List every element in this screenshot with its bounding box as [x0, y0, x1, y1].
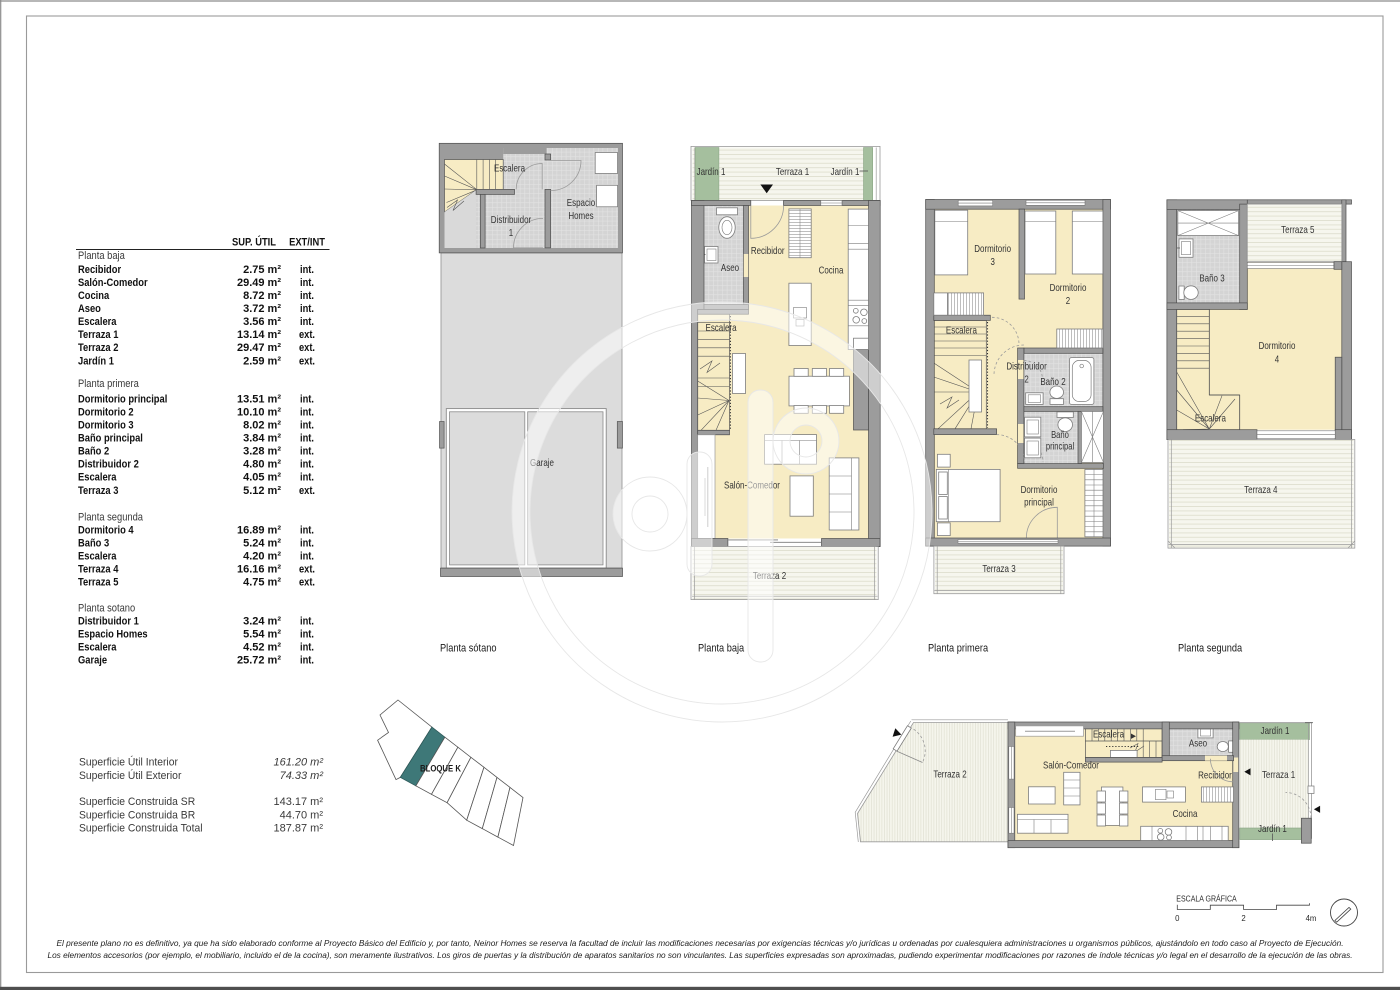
svg-text:Baño 2: Baño 2 — [1040, 376, 1065, 388]
svg-text:161.20 m²: 161.20 m² — [273, 757, 323, 769]
svg-text:44.70 m²: 44.70 m² — [280, 809, 324, 821]
svg-text:Jardín 1: Jardín 1 — [697, 166, 726, 178]
svg-text:25.72 m²: 25.72 m² — [237, 655, 281, 667]
svg-text:Superficie Útil Interior: Superficie Útil Interior — [79, 756, 178, 769]
svg-text:Terraza 3: Terraza 3 — [982, 563, 1015, 575]
svg-text:Distribuidor: Distribuidor — [491, 214, 532, 226]
svg-text:Terraza 5: Terraza 5 — [78, 577, 118, 589]
svg-text:5.24 m²: 5.24 m² — [243, 537, 281, 549]
svg-text:Dormitorio 4: Dormitorio 4 — [78, 524, 134, 536]
svg-text:10.10 m²: 10.10 m² — [237, 406, 281, 418]
svg-text:El presente plano no es defini: El presente plano no es definitivo, ya q… — [57, 939, 1344, 948]
svg-text:Terraza 4: Terraza 4 — [1244, 484, 1277, 496]
svg-text:SUP. ÚTIL: SUP. ÚTIL — [232, 236, 276, 249]
svg-text:int.: int. — [300, 615, 314, 627]
svg-text:Cocina: Cocina — [1173, 808, 1198, 820]
svg-text:Dormitorio 3: Dormitorio 3 — [78, 420, 134, 432]
svg-text:Jardín 1: Jardín 1 — [1258, 823, 1287, 835]
svg-text:1: 1 — [509, 227, 514, 239]
svg-text:2: 2 — [1024, 373, 1029, 385]
svg-text:Dormitorio 2: Dormitorio 2 — [78, 406, 134, 418]
svg-text:Salón-Comedor: Salón-Comedor — [78, 277, 148, 289]
svg-text:ext.: ext. — [299, 329, 315, 341]
svg-text:Escalera: Escalera — [78, 472, 117, 484]
svg-text:Recibidor: Recibidor — [751, 245, 785, 257]
svg-text:Dormitorio: Dormitorio — [1050, 282, 1087, 294]
svg-text:Terraza 1: Terraza 1 — [776, 166, 809, 178]
svg-text:Aseo: Aseo — [1189, 738, 1207, 750]
svg-text:Terraza 4: Terraza 4 — [78, 564, 119, 576]
svg-text:Distribuidor 2: Distribuidor 2 — [78, 459, 139, 471]
svg-text:int.: int. — [300, 316, 314, 328]
svg-text:3: 3 — [991, 256, 996, 268]
svg-text:Planta sótano: Planta sótano — [440, 643, 497, 655]
svg-text:Terraza 3: Terraza 3 — [78, 485, 118, 497]
svg-text:4.52 m²: 4.52 m² — [243, 642, 281, 654]
svg-text:Planta baja: Planta baja — [698, 643, 745, 655]
svg-text:5.54 m²: 5.54 m² — [243, 628, 281, 640]
svg-text:int.: int. — [300, 537, 314, 549]
svg-text:16.89 m²: 16.89 m² — [237, 524, 281, 536]
svg-text:EXT/INT: EXT/INT — [289, 237, 325, 249]
svg-text:int.: int. — [300, 406, 314, 418]
svg-text:29.47 m²: 29.47 m² — [237, 342, 281, 354]
svg-text:Terraza 2: Terraza 2 — [78, 342, 118, 354]
svg-text:2.59 m²: 2.59 m² — [243, 355, 281, 367]
svg-text:principal: principal — [1046, 441, 1074, 453]
svg-text:3.56 m²: 3.56 m² — [243, 316, 281, 328]
svg-text:int.: int. — [300, 290, 314, 302]
svg-text:int.: int. — [300, 264, 314, 276]
svg-text:Distribuidor 1: Distribuidor 1 — [78, 615, 139, 627]
svg-text:4: 4 — [1275, 354, 1280, 366]
svg-text:16.16 m²: 16.16 m² — [237, 564, 281, 576]
svg-text:Escalera: Escalera — [1195, 412, 1226, 424]
svg-text:5.12 m²: 5.12 m² — [243, 485, 281, 497]
svg-text:187.87 m²: 187.87 m² — [273, 823, 323, 835]
svg-text:3.84 m²: 3.84 m² — [243, 433, 281, 445]
svg-text:int.: int. — [300, 655, 314, 667]
svg-text:Dormitorio: Dormitorio — [1259, 340, 1296, 352]
svg-text:Planta primera: Planta primera — [928, 643, 989, 655]
svg-text:Recibidor: Recibidor — [78, 264, 122, 276]
svg-text:3.28 m²: 3.28 m² — [243, 446, 281, 458]
svg-text:Escalera: Escalera — [78, 316, 117, 328]
svg-text:Cocina: Cocina — [819, 264, 844, 276]
svg-text:int.: int. — [300, 472, 314, 484]
svg-text:Baño 3: Baño 3 — [1199, 272, 1224, 284]
svg-text:int.: int. — [300, 393, 314, 405]
svg-text:3.72 m²: 3.72 m² — [243, 303, 281, 315]
svg-text:Dormitorio: Dormitorio — [974, 243, 1011, 255]
svg-text:BLOQUE K: BLOQUE K — [420, 764, 461, 774]
svg-text:Salón-Comedor: Salón-Comedor — [1043, 760, 1099, 772]
svg-text:4.05 m²: 4.05 m² — [243, 472, 281, 484]
svg-text:4.20 m²: 4.20 m² — [243, 551, 281, 563]
svg-text:Distribuidor: Distribuidor — [1006, 360, 1047, 372]
svg-text:Aseo: Aseo — [78, 303, 101, 315]
svg-text:Recibidor: Recibidor — [1198, 769, 1232, 781]
svg-text:Jardín 1: Jardín 1 — [78, 355, 114, 367]
svg-text:Baño 3: Baño 3 — [78, 537, 109, 549]
svg-text:74.33 m²: 74.33 m² — [280, 770, 324, 782]
svg-text:ext.: ext. — [299, 355, 315, 367]
svg-text:4.80 m²: 4.80 m² — [243, 459, 281, 471]
svg-text:int.: int. — [300, 551, 314, 563]
svg-text:int.: int. — [300, 277, 314, 289]
svg-text:Superficie Construida BR: Superficie Construida BR — [79, 809, 195, 821]
svg-text:int.: int. — [300, 459, 314, 471]
svg-text:principal: principal — [1024, 497, 1054, 509]
svg-text:ext.: ext. — [299, 564, 315, 576]
svg-text:Baño 2: Baño 2 — [78, 446, 109, 458]
svg-text:Aseo: Aseo — [721, 262, 739, 274]
svg-text:29.49 m²: 29.49 m² — [237, 277, 281, 289]
svg-text:2.75 m²: 2.75 m² — [243, 264, 281, 276]
svg-text:ext.: ext. — [299, 577, 315, 589]
svg-text:Jardín 1: Jardín 1 — [831, 166, 860, 178]
svg-text:Escalera: Escalera — [78, 642, 117, 654]
svg-text:Escalera: Escalera — [494, 162, 525, 174]
svg-text:8.02 m²: 8.02 m² — [243, 420, 281, 432]
svg-text:Dormitorio principal: Dormitorio principal — [78, 393, 167, 405]
svg-text:Garaje: Garaje — [78, 655, 107, 667]
svg-text:2: 2 — [1066, 295, 1071, 307]
svg-text:143.17 m²: 143.17 m² — [273, 796, 323, 808]
svg-text:int.: int. — [300, 420, 314, 432]
svg-text:Homes: Homes — [568, 210, 593, 222]
svg-text:Escalera: Escalera — [706, 322, 737, 334]
svg-text:Planta primera: Planta primera — [78, 378, 140, 390]
svg-text:ext.: ext. — [299, 485, 315, 497]
svg-text:Cocina: Cocina — [78, 290, 110, 302]
svg-text:int.: int. — [300, 446, 314, 458]
svg-text:Escalera: Escalera — [1093, 728, 1124, 740]
svg-text:13.51 m²: 13.51 m² — [237, 393, 281, 405]
svg-text:Planta segunda: Planta segunda — [78, 511, 144, 523]
svg-text:Superficie Construida SR: Superficie Construida SR — [79, 796, 195, 808]
svg-text:Baño principal: Baño principal — [78, 433, 143, 445]
svg-text:ESCALA GRÁFICA: ESCALA GRÁFICA — [1176, 894, 1237, 904]
svg-text:int.: int. — [300, 524, 314, 536]
svg-text:Terraza 1: Terraza 1 — [1262, 769, 1295, 781]
svg-text:Los elementos accesorios (por: Los elementos accesorios (por ejemplo, e… — [48, 951, 1353, 960]
svg-text:Planta baja: Planta baja — [78, 250, 126, 262]
svg-text:0: 0 — [1175, 914, 1180, 923]
svg-text:Terraza 2: Terraza 2 — [933, 769, 966, 781]
svg-text:Jardín 1: Jardín 1 — [1261, 725, 1290, 737]
svg-text:ext.: ext. — [299, 342, 315, 354]
svg-text:8.72 m²: 8.72 m² — [243, 290, 281, 302]
svg-text:Baño: Baño — [1051, 429, 1069, 441]
svg-text:2: 2 — [1241, 914, 1245, 923]
svg-text:13.14 m²: 13.14 m² — [237, 329, 281, 341]
svg-text:Escalera: Escalera — [946, 325, 977, 337]
svg-text:Escalera: Escalera — [78, 551, 117, 563]
svg-text:3.24 m²: 3.24 m² — [243, 615, 281, 627]
svg-text:Dormitorio: Dormitorio — [1021, 484, 1058, 496]
svg-text:4.75 m²: 4.75 m² — [243, 577, 281, 589]
svg-text:int.: int. — [300, 642, 314, 654]
svg-text:Planta segunda: Planta segunda — [1178, 643, 1243, 655]
svg-text:Terraza 5: Terraza 5 — [1281, 224, 1314, 236]
svg-text:Terraza 1: Terraza 1 — [78, 329, 118, 341]
svg-text:int.: int. — [300, 628, 314, 640]
svg-text:Espacio Homes: Espacio Homes — [78, 628, 148, 640]
svg-text:int.: int. — [300, 303, 314, 315]
svg-text:4m: 4m — [1306, 914, 1317, 923]
svg-text:Planta sotano: Planta sotano — [78, 602, 135, 614]
svg-text:Espacio: Espacio — [567, 197, 596, 209]
svg-text:int.: int. — [300, 433, 314, 445]
svg-text:Superficie Construida Total: Superficie Construida Total — [79, 823, 203, 835]
svg-text:Superficie Útil Exterior: Superficie Útil Exterior — [79, 769, 182, 782]
